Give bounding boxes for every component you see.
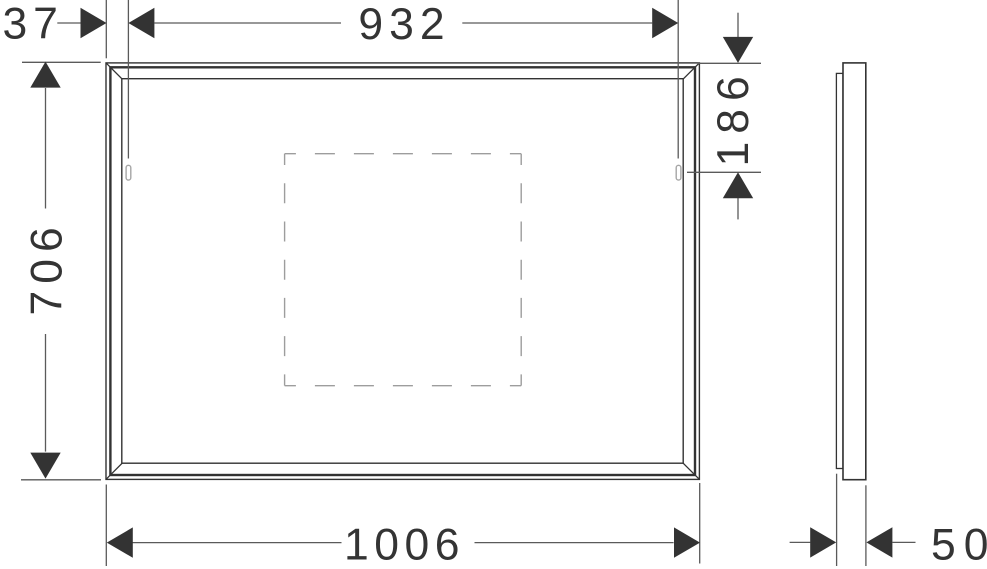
svg-text:186: 186 (709, 68, 758, 166)
svg-text:1006: 1006 (344, 520, 465, 569)
svg-text:932: 932 (358, 0, 450, 49)
svg-text:50: 50 (931, 521, 987, 569)
svg-text:706: 706 (23, 220, 72, 315)
svg-text:37: 37 (2, 0, 64, 49)
